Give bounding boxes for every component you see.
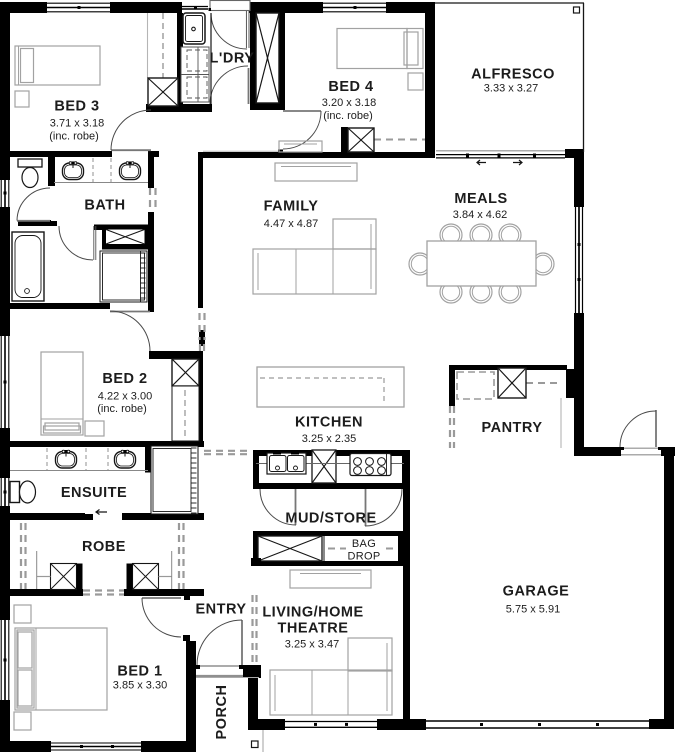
svg-text:4.47 x 4.87: 4.47 x 4.87: [264, 218, 318, 230]
svg-text:BED 4: BED 4: [328, 79, 373, 95]
svg-text:ALFRESCO: ALFRESCO: [471, 67, 555, 83]
svg-text:DROP: DROP: [348, 551, 381, 563]
svg-text:L'DRY: L'DRY: [210, 51, 255, 67]
svg-text:KITCHEN: KITCHEN: [295, 415, 363, 431]
svg-text:THEATRE: THEATRE: [278, 621, 349, 637]
svg-text:ROBE: ROBE: [82, 539, 126, 555]
svg-text:PANTRY: PANTRY: [482, 420, 543, 436]
svg-text:LIVING/HOME: LIVING/HOME: [262, 605, 363, 621]
svg-text:MEALS: MEALS: [454, 191, 507, 207]
svg-text:3.71 x 3.18: 3.71 x 3.18: [50, 118, 104, 130]
svg-text:MUD/STORE: MUD/STORE: [285, 511, 376, 527]
svg-text:BATH: BATH: [84, 198, 125, 214]
svg-text:5.75 x 5.91: 5.75 x 5.91: [506, 604, 560, 616]
svg-text:ENSUITE: ENSUITE: [61, 485, 127, 501]
svg-text:3.20 x 3.18: 3.20 x 3.18: [322, 97, 376, 109]
svg-text:PORCH: PORCH: [214, 685, 230, 740]
svg-text:BED 2: BED 2: [102, 371, 147, 387]
svg-text:(inc. robe): (inc. robe): [97, 403, 147, 415]
svg-text:BAG: BAG: [352, 538, 376, 550]
svg-text:3.25 x 3.47: 3.25 x 3.47: [285, 639, 339, 651]
svg-text:4.22 x 3.00: 4.22 x 3.00: [98, 391, 152, 403]
svg-text:(inc. robe): (inc. robe): [49, 131, 99, 143]
svg-text:ENTRY: ENTRY: [195, 602, 246, 618]
svg-text:FAMILY: FAMILY: [264, 199, 319, 215]
svg-text:3.84 x 4.62: 3.84 x 4.62: [453, 209, 507, 221]
svg-text:3.85 x 3.30: 3.85 x 3.30: [113, 680, 167, 692]
svg-text:GARAGE: GARAGE: [503, 584, 570, 600]
svg-text:BED 3: BED 3: [54, 99, 99, 115]
svg-text:(inc. robe): (inc. robe): [323, 110, 373, 122]
svg-text:3.33 x 3.27: 3.33 x 3.27: [484, 82, 538, 94]
svg-text:BED 1: BED 1: [117, 664, 162, 680]
svg-text:3.25 x 2.35: 3.25 x 2.35: [302, 433, 356, 445]
